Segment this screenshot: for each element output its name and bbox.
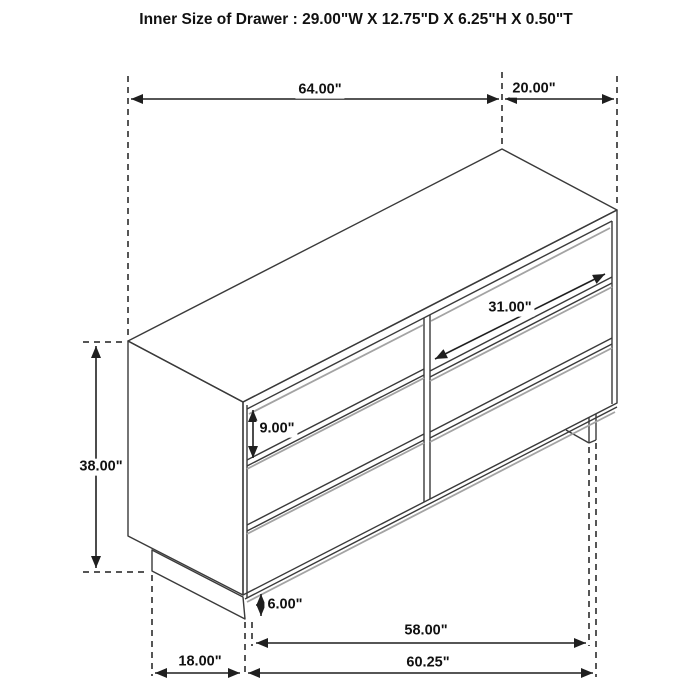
dim-drawer-width-label: 31.00" bbox=[485, 300, 534, 317]
top-face bbox=[128, 149, 617, 402]
dim-31-arrow bbox=[435, 274, 605, 359]
dim-top-width-label: 64.00" bbox=[295, 82, 344, 99]
dim-drawer-height-label: 9.00" bbox=[256, 421, 297, 438]
dimension-arrows bbox=[96, 99, 614, 673]
left-base-runner bbox=[152, 550, 245, 619]
extension-lines bbox=[83, 72, 617, 677]
dim-top-depth-label: 20.00" bbox=[509, 81, 558, 98]
bevel-shadow-lines bbox=[247, 228, 615, 602]
left-drawer-gaps bbox=[247, 369, 424, 531]
dimension-diagram: Inner Size of Drawer : 29.00"W X 12.75"D… bbox=[0, 0, 700, 700]
center-divider bbox=[424, 315, 430, 502]
dim-base-height-label: 6.00" bbox=[264, 597, 305, 614]
dim-bottom-width-label: 60.25" bbox=[403, 655, 452, 672]
left-side-face bbox=[128, 341, 243, 595]
dim-base-depth-label: 18.00" bbox=[175, 654, 224, 671]
dim-height-label: 38.00" bbox=[76, 459, 125, 476]
dresser-line-drawing bbox=[0, 0, 700, 700]
dim-base-span-label: 58.00" bbox=[401, 623, 450, 640]
right-base-leg bbox=[566, 414, 596, 443]
diagram-title: Inner Size of Drawer : 29.00"W X 12.75"D… bbox=[139, 11, 572, 29]
